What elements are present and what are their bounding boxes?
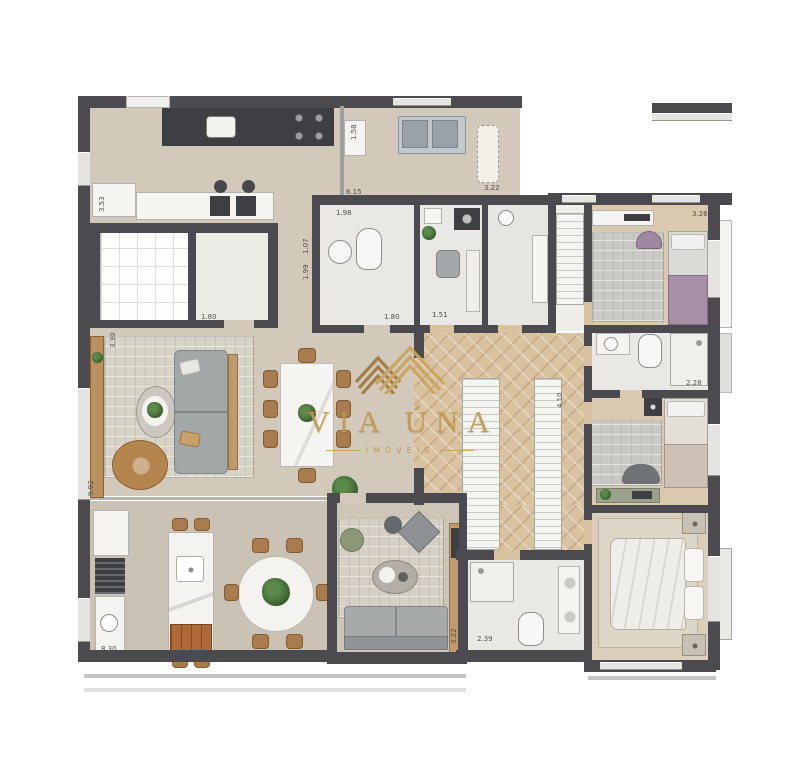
dimension-label: 3.26 (692, 211, 708, 218)
dimension-layer: 6.151.981.071.993.531.581.801.801.513.22… (0, 0, 799, 776)
dimension-label: 3.22 (484, 185, 500, 192)
dimension-label: 8.30 (101, 646, 117, 653)
dimension-label: 1.98 (336, 210, 352, 217)
dimension-label: 1.07 (303, 238, 310, 254)
dimension-label: 3.53 (99, 196, 106, 212)
dimension-label: 9.92 (88, 480, 95, 496)
dimension-label: 1.80 (201, 314, 217, 321)
dimension-label: 3.22 (451, 628, 458, 644)
dimension-label: 1.58 (351, 124, 358, 140)
dimension-label: 6.15 (346, 189, 362, 196)
dimension-label: 2.28 (686, 380, 702, 387)
dimension-label: 1.80 (384, 314, 400, 321)
dimension-label: 2.39 (477, 636, 493, 643)
dimension-label: 1.51 (432, 312, 448, 319)
dimension-label: 4.10 (557, 392, 564, 408)
dimension-label: 1.99 (303, 264, 310, 280)
dimension-label: 3.30 (110, 332, 117, 348)
floor-plan: 6.151.981.071.993.531.581.801.801.513.22… (0, 0, 799, 776)
